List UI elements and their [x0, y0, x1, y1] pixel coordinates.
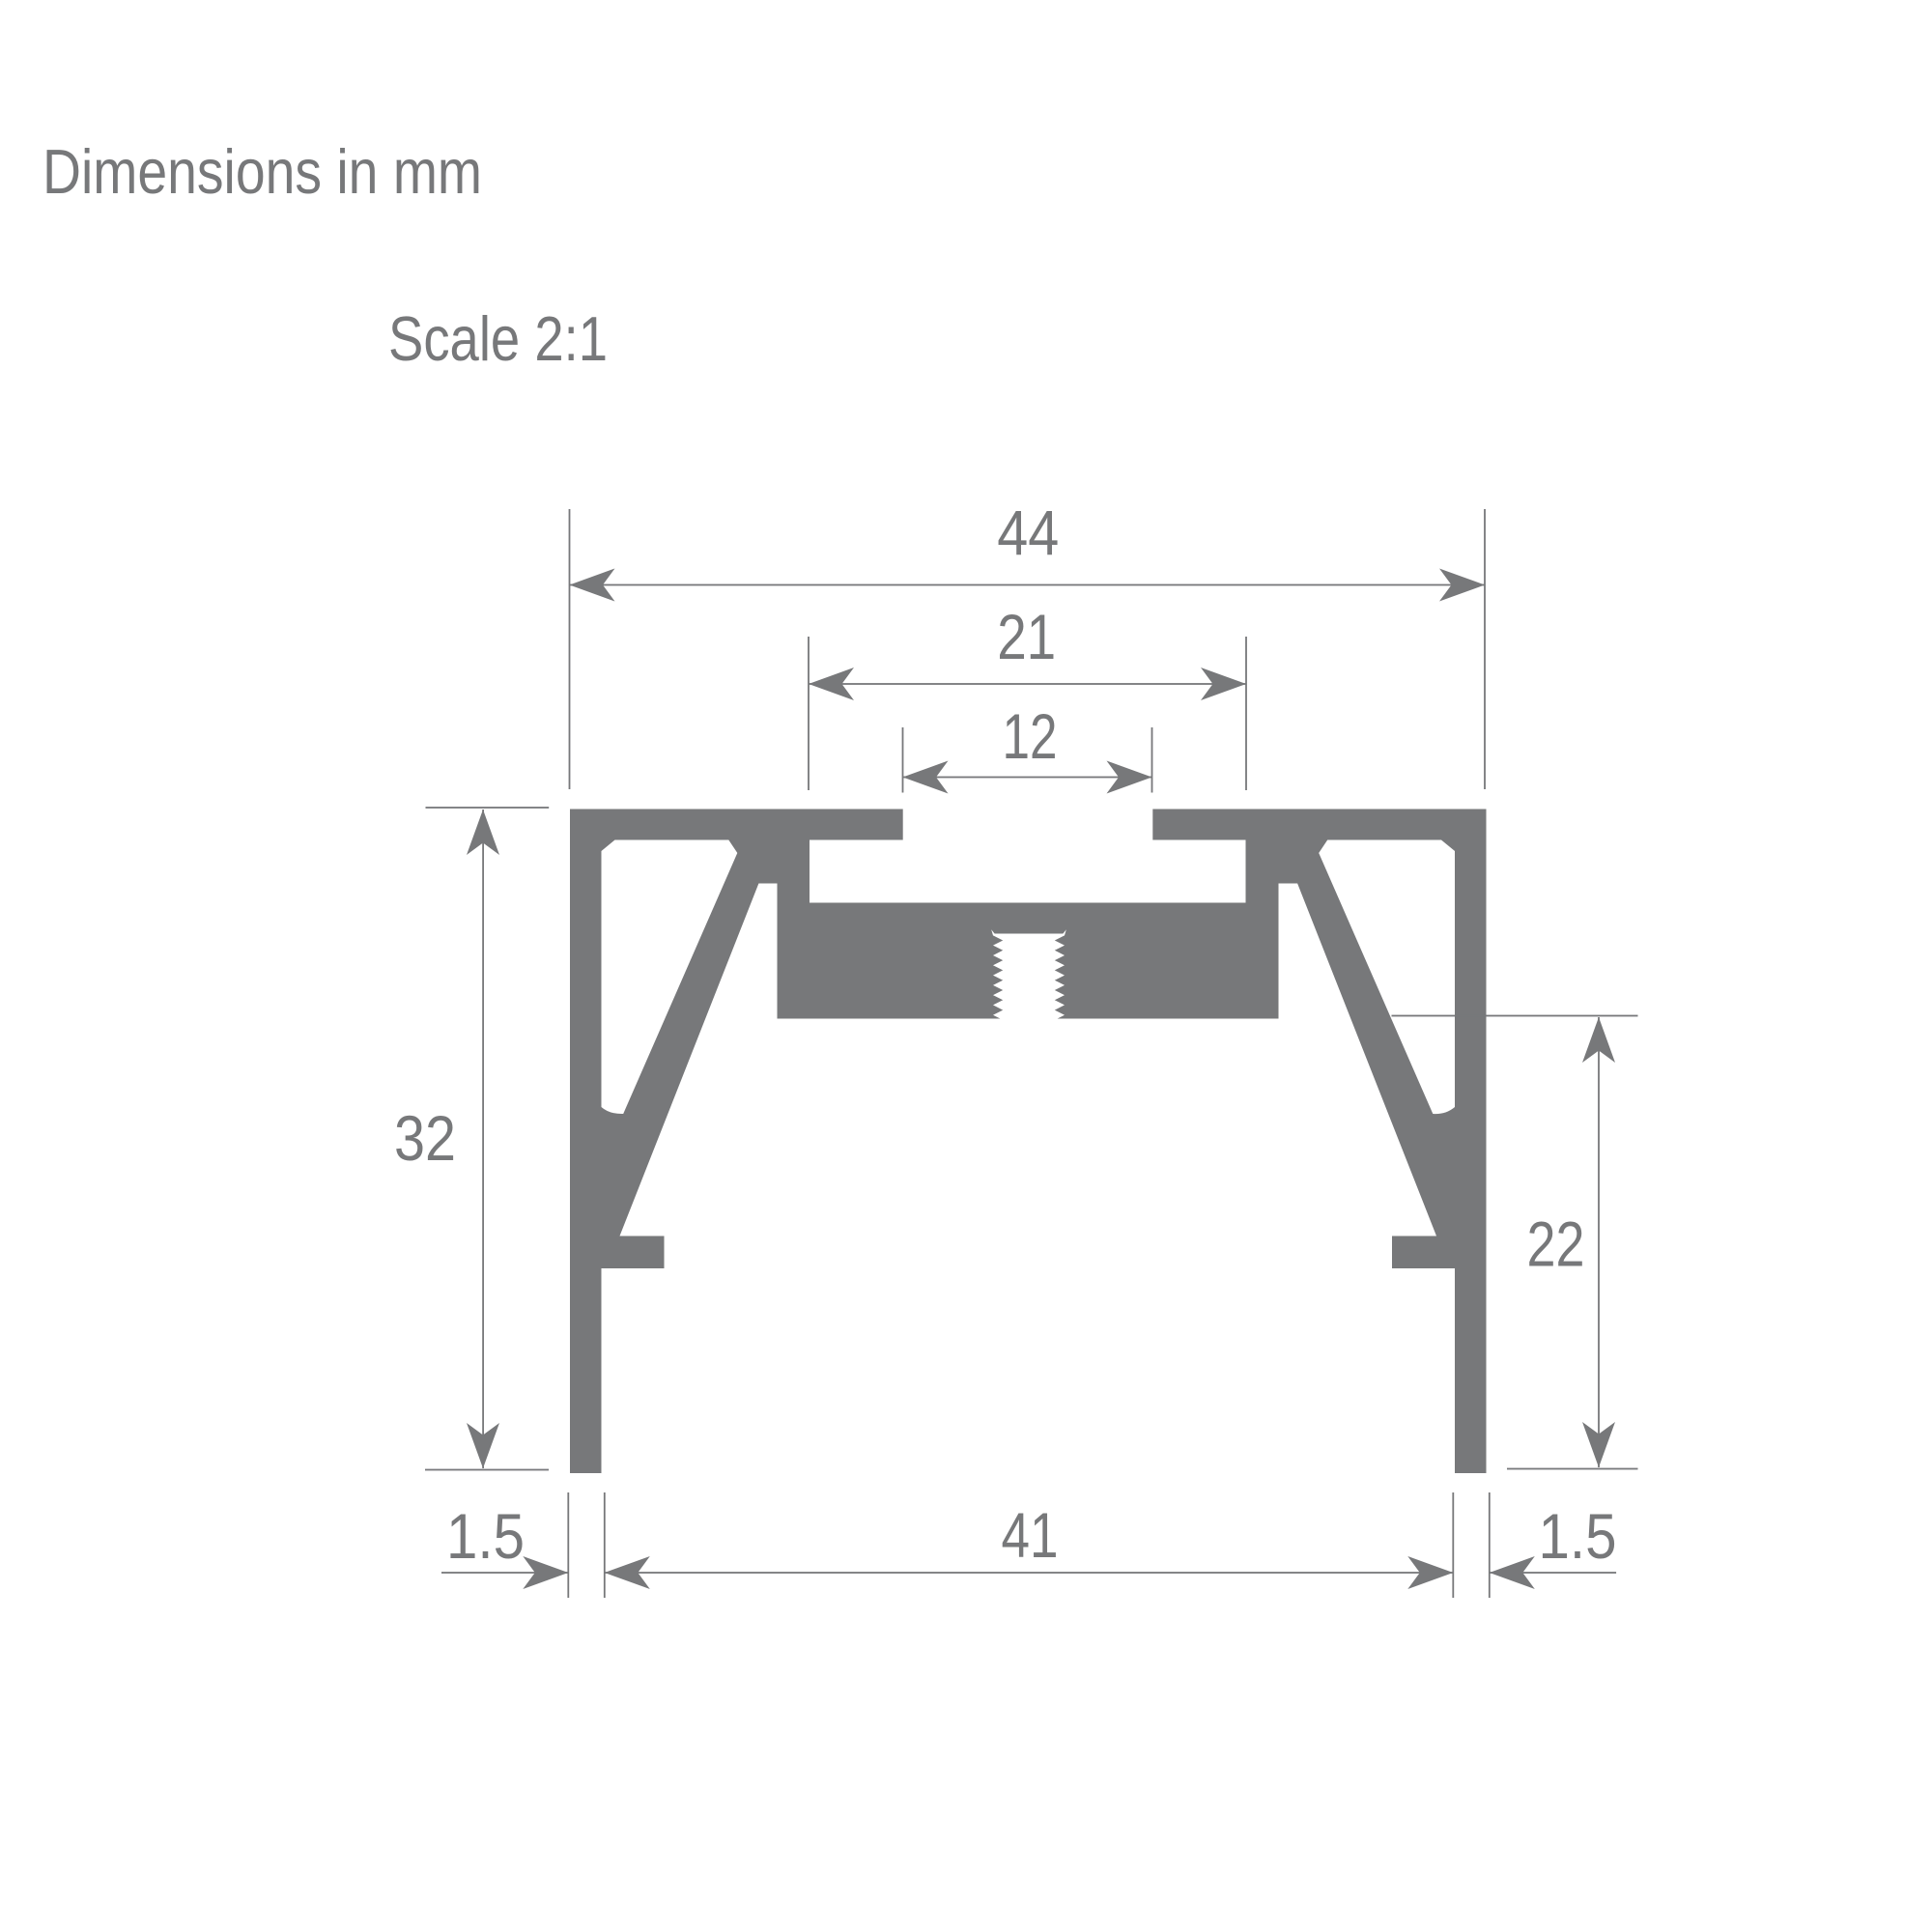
svg-text:1.5: 1.5 [1539, 1500, 1617, 1572]
svg-text:44: 44 [997, 497, 1059, 569]
svg-text:1.5: 1.5 [446, 1500, 525, 1572]
svg-text:41: 41 [1002, 1499, 1059, 1571]
svg-text:Scale 2:1: Scale 2:1 [388, 303, 608, 374]
svg-text:12: 12 [1003, 700, 1058, 772]
svg-text:32: 32 [394, 1102, 456, 1174]
svg-text:22: 22 [1527, 1208, 1585, 1280]
svg-text:21: 21 [997, 601, 1056, 672]
svg-text:Dimensions in mm: Dimensions in mm [43, 136, 482, 207]
